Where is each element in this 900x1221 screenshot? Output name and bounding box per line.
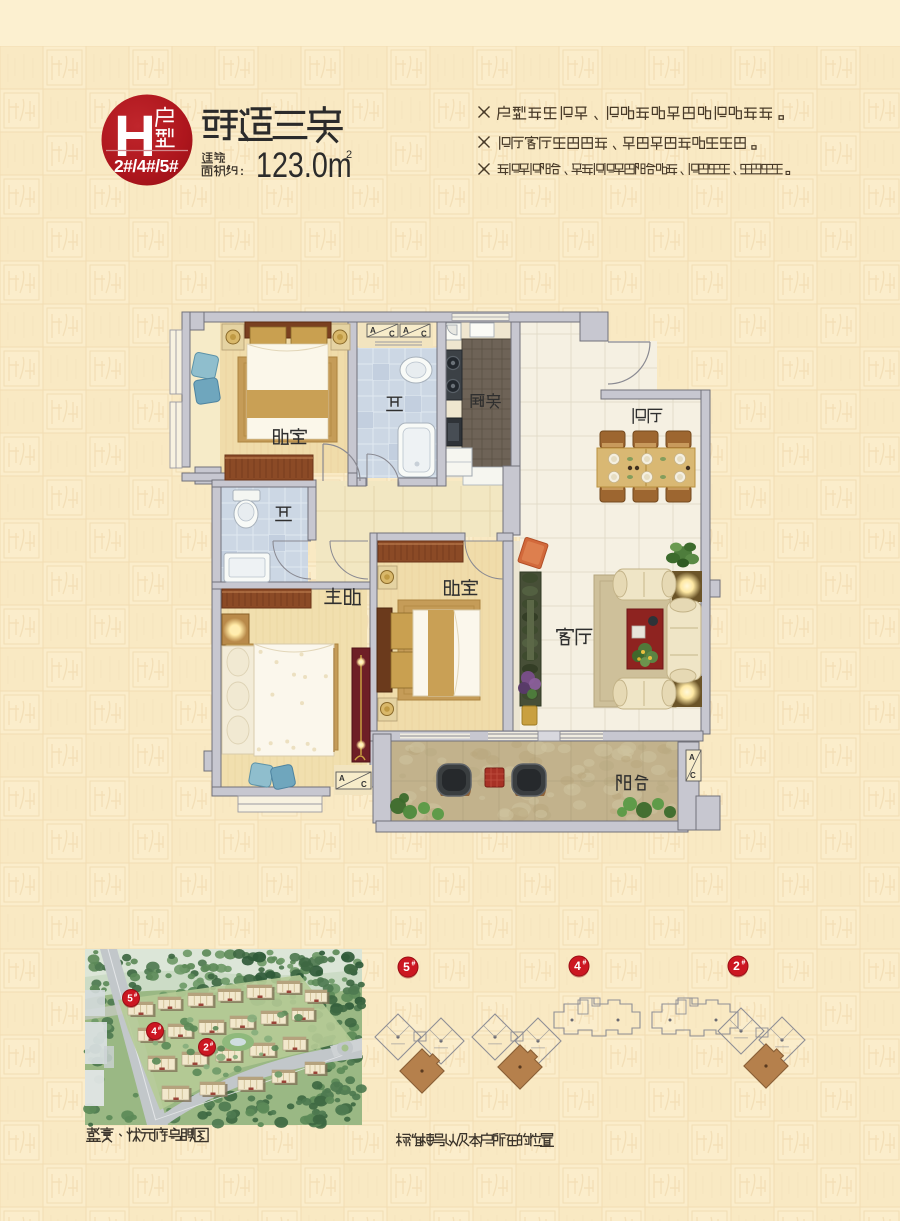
svg-text:C: C [389,330,395,339]
svg-text:#: # [583,960,587,967]
svg-text:4: 4 [574,959,581,973]
svg-text:A: A [370,326,376,335]
svg-text:123.0m: 123.0m [256,145,352,184]
svg-text:#: # [742,960,746,967]
svg-text:C: C [421,330,427,339]
svg-text:A: A [403,326,409,335]
svg-text:C: C [361,780,367,789]
svg-text:5: 5 [403,960,410,974]
svg-text:A: A [339,774,345,783]
svg-text:2: 2 [346,149,352,161]
svg-text:C: C [690,771,696,780]
svg-text:4: 4 [151,1027,157,1038]
svg-text:2#/4#/5#: 2#/4#/5# [114,156,179,176]
svg-text:2: 2 [203,1043,209,1054]
svg-text::: : [240,164,244,178]
svg-text:#: # [412,961,416,968]
svg-text:5: 5 [127,994,133,1005]
svg-text:A: A [689,753,695,762]
svg-text:2: 2 [733,959,740,973]
